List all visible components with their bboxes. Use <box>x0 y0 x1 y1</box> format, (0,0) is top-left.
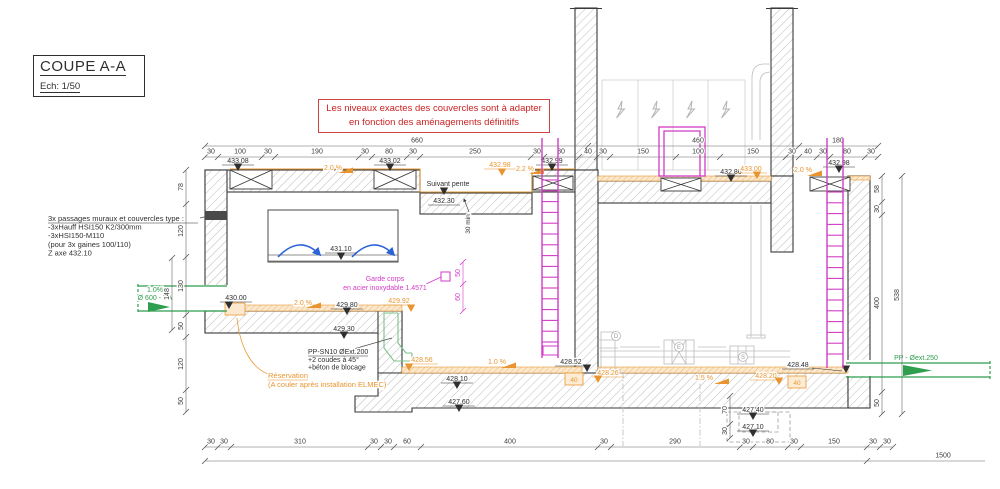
cover-hatch <box>230 170 272 189</box>
dim-value: 30 <box>869 439 877 446</box>
dim-value: 130 <box>178 280 185 292</box>
pp-pipe-note: +2 coudes à 45° <box>308 356 359 364</box>
dim-value: 400 <box>504 439 516 446</box>
inlet-pipe-label: 1.0% <box>147 287 163 294</box>
dim-value: 50 <box>874 399 881 407</box>
dim-value: 30 <box>384 439 392 446</box>
slope-label: 2.0 % <box>324 165 342 172</box>
level-triangle-icon <box>407 305 415 313</box>
dim-value: 30 <box>409 149 417 156</box>
dim-value: 30 <box>819 149 827 156</box>
reservation-note: (A couler après installation ELMEC) <box>268 380 387 389</box>
screed-thickness-value: 40 <box>570 377 578 384</box>
dim-value: 50 <box>455 269 462 277</box>
dim-value: 40 <box>584 149 592 156</box>
drawing-canvas: 433.08433.02432.98432.99432.30431.10430.… <box>0 0 1000 489</box>
dim-value: 30 <box>867 149 875 156</box>
electrical-cabinets <box>602 80 745 170</box>
equipment-tag-letter: S <box>741 355 745 361</box>
slope-label: 2.0 % <box>794 167 812 174</box>
cover-hatch <box>533 176 573 190</box>
equipment-tag-letter: D <box>614 334 619 340</box>
dim-value: 80 <box>766 439 774 446</box>
dim-value: 150 <box>828 439 840 446</box>
dim-value: 70 <box>722 406 729 414</box>
dim-value: 30 <box>361 149 369 156</box>
equipment-tag-letter: E <box>677 345 681 351</box>
dim-value: 190 <box>311 149 323 156</box>
cover-hatch <box>374 170 416 189</box>
level-triangle-icon <box>749 430 757 438</box>
outlet-pipe-label: PP - Øext.250 <box>894 355 938 362</box>
dim-value: 120 <box>178 225 185 237</box>
title-block: COUPE A-A Ech: 1/50 <box>33 55 145 97</box>
level-value: 430.00 <box>225 295 247 302</box>
dim-value: 30 <box>264 149 272 156</box>
dim-value: 80 <box>385 149 393 156</box>
guardrail-note: en acier inoxydable 1.4571 <box>343 285 427 292</box>
drawing-scale: Ech: 1/50 <box>40 81 80 93</box>
level-triangle-icon <box>498 169 506 177</box>
dim-value: 30 <box>533 149 541 156</box>
cover-hatch <box>661 178 701 191</box>
dim-value: 30 <box>220 439 228 446</box>
gray-conduit <box>752 64 771 140</box>
dim-value: 30 <box>207 149 215 156</box>
level-value: 428.52 <box>560 359 582 366</box>
dim-value: 40 <box>804 149 812 156</box>
dim-value: 30 <box>599 149 607 156</box>
level-value: 431.10 <box>330 246 352 253</box>
dim-value: 30 <box>722 427 729 435</box>
middle-wall <box>575 170 598 373</box>
dim-value: 60 <box>403 439 411 446</box>
min-cover-label: 30 min <box>465 214 472 234</box>
dim-value: 78 <box>178 183 185 191</box>
level-triangle-icon <box>340 332 348 340</box>
dim-value: 180 <box>832 138 844 145</box>
slope-label: 2.2 % <box>516 166 534 173</box>
slope-label: 1.5 % <box>695 375 713 382</box>
dim-value: 30 <box>370 439 378 446</box>
dim-value: 50 <box>178 397 185 405</box>
level-value: 432.98 <box>489 162 511 169</box>
level-value: 428.56 <box>411 357 433 364</box>
dim-value: 400 <box>874 297 881 309</box>
screed-thickness-value: 40 <box>793 380 801 387</box>
reservation-note: Réservation <box>268 371 308 380</box>
dim-value: 100 <box>692 149 704 156</box>
dim-value: 150 <box>747 149 759 156</box>
flow-arrow-icon <box>903 365 932 376</box>
dim-value: 58 <box>874 185 881 193</box>
dim-value: 150 <box>637 149 649 156</box>
pp-pipe-note: PP-SN10 ØExt.200 <box>308 349 368 356</box>
cover-hatch <box>810 177 850 191</box>
level-value: 432.30 <box>433 198 455 205</box>
slope-label: 1.0 % <box>488 359 506 366</box>
dim-value: 30 <box>600 439 608 446</box>
dim-value: 60 <box>455 293 462 301</box>
dim-value: 250 <box>469 149 481 156</box>
channel-box <box>268 210 398 262</box>
level-value: 429.92 <box>388 298 410 305</box>
dim-value: 148 <box>164 288 171 300</box>
dim-value: 80 <box>843 149 851 156</box>
dim-value: 30 <box>742 439 750 446</box>
dim-value: 538 <box>894 289 901 301</box>
guardrail-note: Garde corps <box>366 276 405 283</box>
section-drawing: 433.08433.02432.98432.99432.30431.10430.… <box>0 0 1000 489</box>
dim-value: 460 <box>692 138 704 145</box>
dim-value: 50 <box>178 322 185 330</box>
dim-value: 290 <box>669 439 681 446</box>
level-triangle-icon <box>835 166 843 174</box>
pp-pipe-note: +béton de blocage <box>308 365 366 372</box>
dim-value: 100 <box>234 149 246 156</box>
warning-note: Les niveaux exactes des couvercles sont … <box>318 99 550 133</box>
dim-value: 30 <box>874 205 881 213</box>
suivant-pente-label: Suivant pente <box>427 181 470 188</box>
dim-value: 1500 <box>935 453 951 460</box>
dim-value: 30 <box>883 439 891 446</box>
hanging-wall <box>771 176 793 252</box>
dim-value: 310 <box>294 439 306 446</box>
guardrail-leader <box>424 277 441 285</box>
guardrail-post-marker <box>441 272 450 281</box>
ladder-latch <box>543 346 558 355</box>
level-value: 428.48 <box>787 362 809 369</box>
dim-value: 660 <box>411 138 423 145</box>
dim-value: 30 <box>207 439 215 446</box>
slope-label: 2.0 % <box>294 300 312 307</box>
level-value: 428.20 <box>755 373 777 380</box>
warning-note-line2: en fonction des aménagements définitifs <box>321 116 547 130</box>
dim-value: 120 <box>178 358 185 370</box>
wall-passages-note: Z axe 432.10 <box>48 248 92 257</box>
drawing-title: COUPE A-A <box>40 58 126 76</box>
dim-value: 30 <box>790 439 798 446</box>
level-triangle-icon <box>749 413 757 421</box>
warning-note-line1: Les niveaux exactes des couvercles sont … <box>321 102 547 116</box>
dim-value: 30 <box>788 149 796 156</box>
